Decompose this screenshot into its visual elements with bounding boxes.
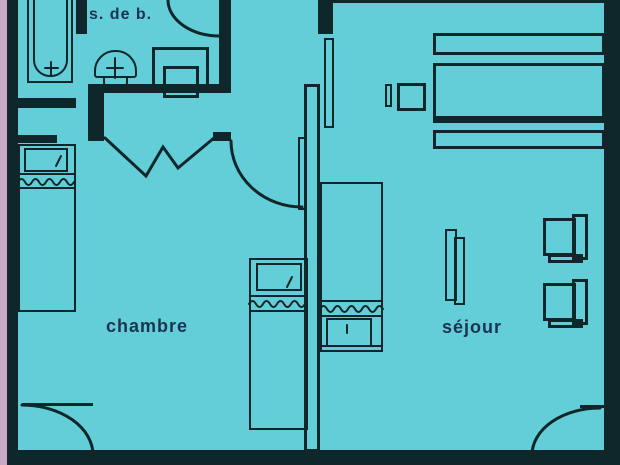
bathtub-inner — [33, 0, 68, 77]
label-chambre: chambre — [106, 316, 188, 337]
washbasin-bowl — [94, 50, 137, 78]
floor-plan: s. de b. chambre séjour — [0, 0, 620, 465]
bed-right-blanket-bottom — [320, 315, 383, 317]
wall-closet-top — [18, 98, 76, 108]
kitchen-counter-top — [433, 33, 605, 55]
bed-right-pillow — [326, 318, 372, 347]
washbasin-pedestal — [103, 76, 128, 92]
armchair-1-arm — [548, 254, 583, 263]
armchair-2-arm — [548, 319, 583, 328]
bed-middle-blanket-bottom — [249, 310, 308, 312]
wall-post-left — [88, 84, 104, 141]
wall-duct-top-stub — [318, 0, 333, 34]
door-leaf-bottom-right — [580, 405, 604, 408]
wall-chambre-north — [18, 135, 57, 143]
bed-left-blanket-bottom — [18, 187, 76, 189]
entry-door-swing — [168, 0, 220, 36]
stove-knob-rect — [385, 84, 392, 107]
radiator-shelf-front — [445, 229, 457, 301]
kitchen-counter-main — [433, 63, 605, 123]
armchair-1-seat — [543, 218, 576, 256]
wall-post-right — [213, 132, 231, 141]
kitchen-counter-low — [433, 130, 605, 149]
bed-right-footboard — [320, 345, 383, 347]
scan-edge-strip — [0, 0, 7, 465]
stove-unit — [397, 83, 426, 111]
door-swing-bottom-left — [22, 405, 93, 455]
bed-left-pillow — [24, 148, 68, 172]
door-swing-bottom-right — [532, 408, 600, 455]
label-salle-de-bain: s. de b. — [89, 6, 152, 24]
wall-duct — [324, 38, 334, 128]
wall-right — [604, 0, 620, 465]
label-sejour: séjour — [442, 317, 502, 338]
wall-bottom — [7, 450, 620, 465]
toilet-bowl — [163, 66, 199, 98]
bed-middle-pillow — [256, 263, 302, 291]
bed-left-blanket-top — [18, 173, 76, 175]
wall-top-line — [330, 0, 604, 3]
wall-central-stub — [298, 137, 307, 210]
bed-middle-blanket-top — [249, 295, 308, 297]
bedroom-door-swing — [231, 141, 302, 207]
wall-tub-stub — [76, 0, 87, 34]
wall-bath-right — [219, 0, 231, 90]
bed-right-blanket-top — [320, 300, 383, 302]
armchair-2-seat — [543, 283, 576, 321]
folding-accordion-door — [105, 138, 214, 176]
wall-left — [7, 0, 18, 465]
door-leaf-bottom-left — [22, 403, 93, 406]
